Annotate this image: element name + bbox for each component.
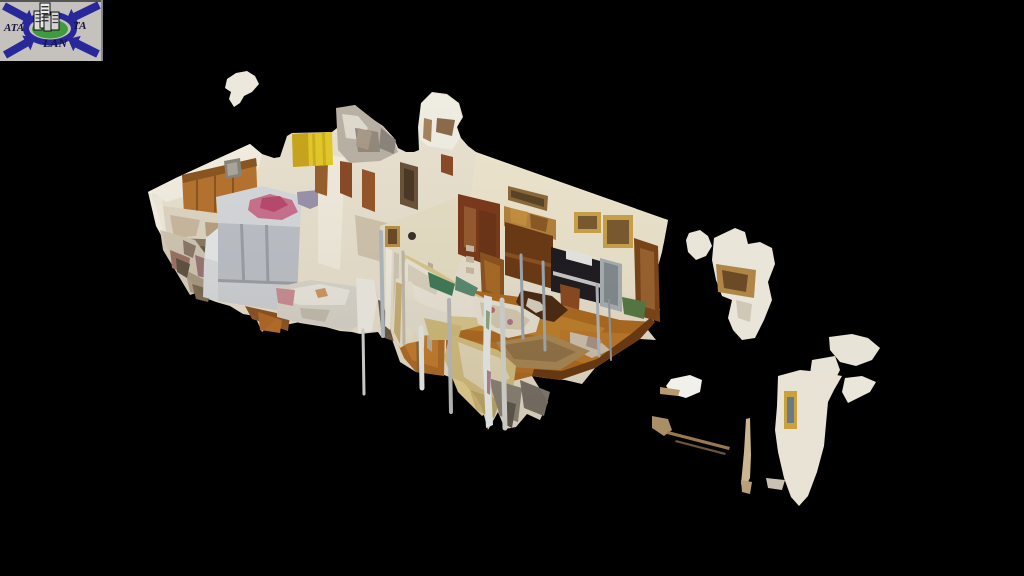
svg-text:LAN: LAN <box>42 36 68 50</box>
svg-text:ATA: ATA <box>3 22 24 34</box>
svg-text:TA: TA <box>73 20 86 32</box>
